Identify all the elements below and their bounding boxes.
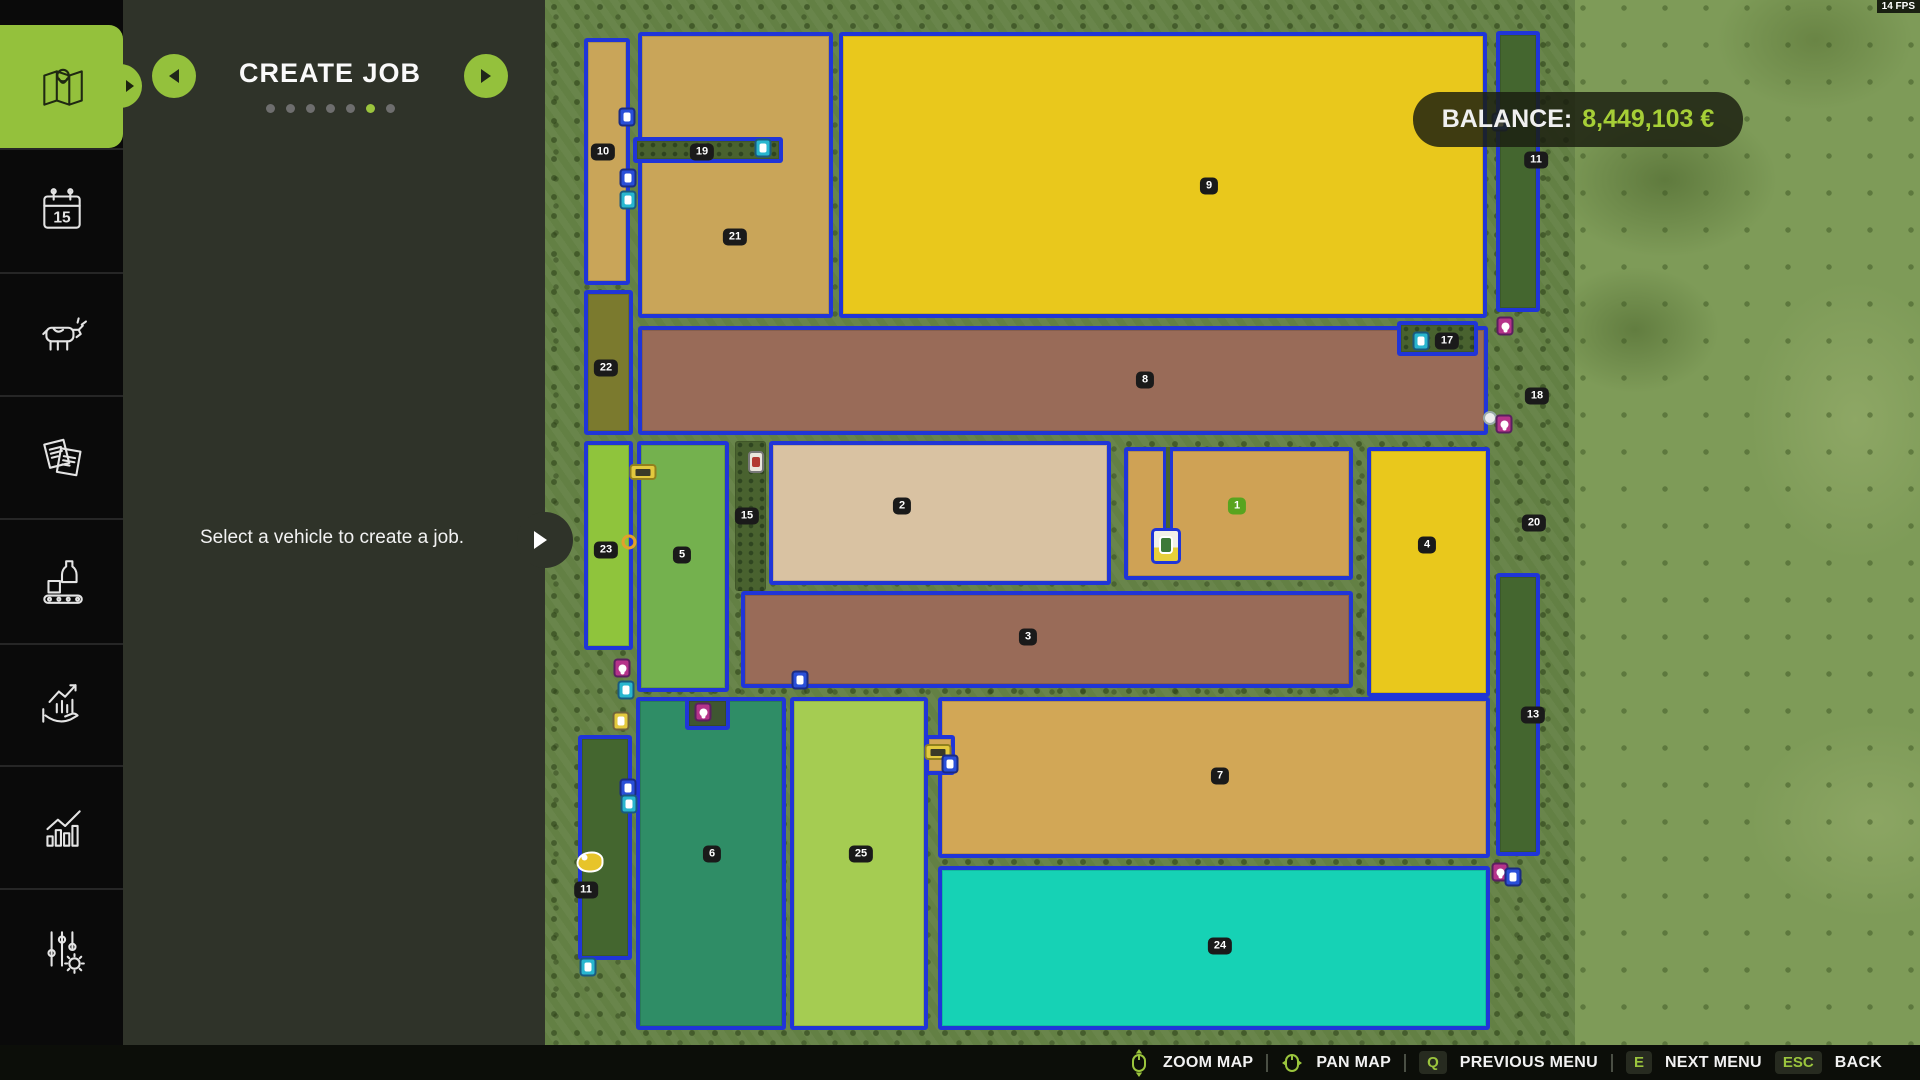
ring-marker-icon[interactable] (622, 535, 637, 550)
fps-counter: 14 FPS (1877, 0, 1920, 13)
divider (1404, 1054, 1406, 1072)
bottom-bar-items: ZOOM MAPPAN MAPQPREVIOUS MENUENEXT MENUE… (1128, 1045, 1882, 1080)
vehicle-icon[interactable] (613, 712, 630, 731)
hint-back[interactable]: BACK (1835, 1054, 1882, 1072)
key-badge-e: E (1626, 1051, 1652, 1074)
sidebar-item-settings[interactable] (0, 890, 123, 1009)
field-label: 10 (591, 144, 615, 161)
settings-icon (36, 924, 88, 976)
field-25[interactable] (790, 697, 928, 1030)
field-label: 7 (1211, 768, 1229, 785)
sidebar-item-statistics[interactable] (0, 767, 123, 886)
field-label: 11 (574, 882, 598, 899)
mouse-zoom-icon (1128, 1048, 1150, 1078)
field-label: 4 (1418, 537, 1436, 554)
field-11[interactable] (578, 735, 632, 960)
field-label: 20 (1522, 515, 1546, 532)
field-11[interactable] (1496, 31, 1540, 312)
vehicle-icon[interactable] (621, 795, 638, 814)
field-label: 21 (723, 229, 747, 246)
field-label: 8 (1136, 372, 1154, 389)
vehicle-icon[interactable] (620, 191, 637, 210)
create-job-screen: 1021911192281723515214313625724111820 BA… (0, 0, 1920, 1080)
svg-text:15: 15 (53, 209, 71, 226)
sidebar: 15 (0, 0, 123, 1080)
field-6[interactable] (636, 697, 786, 1030)
finances-icon (36, 678, 88, 730)
field-label: 19 (690, 144, 714, 161)
sidebar-item-map[interactable] (0, 25, 123, 148)
sidebar-item-calendar[interactable]: 15 (0, 150, 123, 270)
contracts-icon (36, 431, 88, 483)
hint-zoom-map[interactable]: ZOOM MAP (1163, 1054, 1253, 1072)
vehicle-icon[interactable] (1505, 868, 1522, 887)
hint-pan-map[interactable]: PAN MAP (1316, 1054, 1391, 1072)
arrow-left-icon (169, 69, 179, 83)
field-label: 25 (849, 846, 873, 863)
field-9[interactable] (839, 32, 1487, 318)
progress-dot (286, 104, 295, 113)
balance-label: BALANCE: (1442, 105, 1573, 134)
vehicle-icon[interactable] (792, 671, 809, 690)
field-8[interactable] (638, 326, 1488, 435)
arrow-right-icon (481, 69, 491, 83)
progress-dot (306, 104, 315, 113)
sidebar-item-finances[interactable] (0, 645, 123, 763)
divider (1266, 1054, 1268, 1072)
progress-dot (326, 104, 335, 113)
field-lane (1163, 447, 1173, 533)
pin-marker-icon[interactable] (1497, 317, 1514, 336)
cow-icon (36, 308, 88, 360)
calendar-icon: 15 (36, 184, 88, 236)
mouse-pan-icon (1281, 1048, 1303, 1078)
field-label: 1 (1228, 498, 1246, 515)
panel-message: Select a vehicle to create a job. (200, 527, 464, 549)
field-label: 17 (1435, 333, 1459, 350)
pin-marker-icon[interactable] (1496, 415, 1513, 434)
field-label: 22 (594, 360, 618, 377)
key-badge-esc: ESC (1775, 1051, 1822, 1074)
vehicle-icon[interactable] (1413, 332, 1430, 351)
production-icon (36, 555, 88, 607)
prev-page-button[interactable] (152, 54, 196, 98)
pin-marker-icon[interactable] (695, 703, 712, 722)
sidebar-item-contracts[interactable] (0, 397, 123, 516)
progress-dot (346, 104, 355, 113)
balance-pill: BALANCE: 8,449,103 € (1413, 92, 1743, 147)
pin-marker-icon[interactable] (614, 659, 631, 678)
sidebar-item-production[interactable] (0, 520, 123, 641)
vehicle-icon[interactable] (618, 681, 635, 700)
progress-dot (366, 104, 375, 113)
field-2[interactable] (769, 441, 1111, 585)
sidebar-item-animals[interactable] (0, 274, 123, 393)
field-label: 2 (893, 498, 911, 515)
next-page-button[interactable] (464, 54, 508, 98)
bottom-hint-bar: ZOOM MAPPAN MAPQPREVIOUS MENUENEXT MENUE… (0, 1045, 1920, 1080)
progress-dot (266, 104, 275, 113)
statistics-icon (36, 801, 88, 853)
balance-value: 8,449,103 € (1582, 105, 1714, 134)
duck-icon[interactable] (577, 852, 604, 873)
map-terrain-right (1575, 0, 1920, 1080)
key-badge-q: Q (1419, 1051, 1447, 1074)
hint-previous-menu[interactable]: PREVIOUS MENU (1460, 1054, 1598, 1072)
page-title: CREATE JOB (210, 58, 450, 89)
field-label: 9 (1200, 178, 1218, 195)
vehicle-group-icon[interactable] (630, 464, 657, 480)
field-label: 5 (673, 547, 691, 564)
field-label: 13 (1521, 707, 1545, 724)
map-icon-wrap (0, 25, 123, 148)
vehicle-icon[interactable] (620, 169, 637, 188)
field-3[interactable] (741, 591, 1353, 688)
expand-arrow-icon (534, 531, 547, 549)
hint-next-menu[interactable]: NEXT MENU (1665, 1054, 1762, 1072)
vehicle-icon[interactable] (580, 958, 597, 977)
field-10[interactable] (584, 38, 630, 285)
map-icon (36, 61, 88, 113)
harvester-icon[interactable] (748, 451, 764, 473)
vehicle-box-icon[interactable] (1151, 528, 1181, 564)
field-label: 15 (735, 508, 759, 525)
active-tab-arrow-icon (126, 80, 134, 92)
field-label: 24 (1208, 938, 1232, 955)
field-4[interactable] (1367, 447, 1490, 697)
vehicle-icon[interactable] (755, 139, 772, 158)
field-label: 18 (1525, 388, 1549, 405)
vehicle-icon[interactable] (619, 108, 636, 127)
field-label: 3 (1019, 629, 1037, 646)
vehicle-icon[interactable] (942, 755, 959, 774)
field-21[interactable] (638, 32, 833, 318)
progress-dot (386, 104, 395, 113)
divider (1611, 1054, 1613, 1072)
field-label: 11 (1524, 152, 1548, 169)
field-label: 6 (703, 846, 721, 863)
page-progress-dots (266, 104, 395, 113)
field-label: 23 (594, 542, 618, 559)
